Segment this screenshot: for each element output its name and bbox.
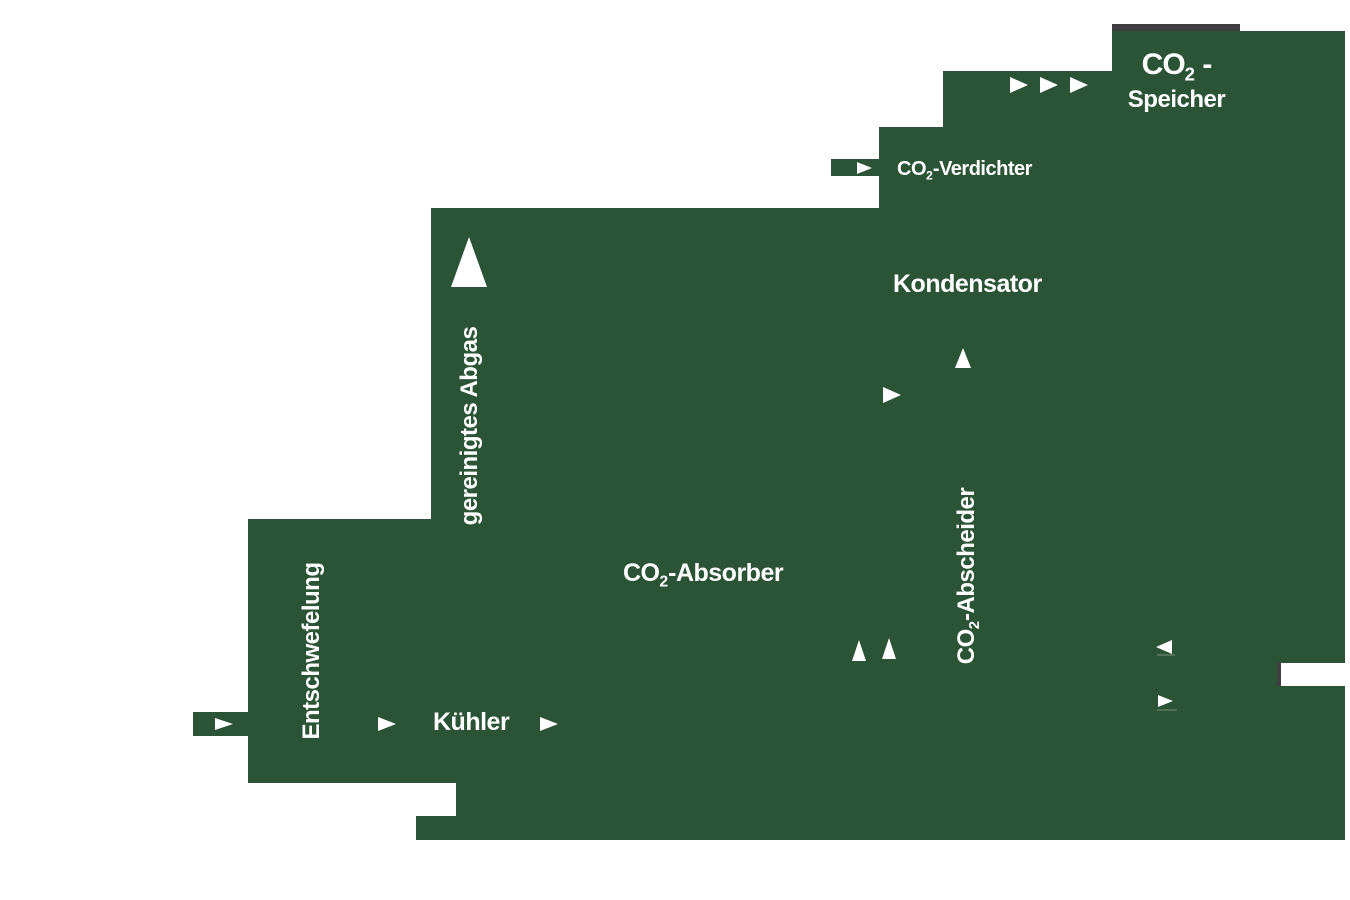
label-kondensator: Kondensator bbox=[893, 272, 1042, 297]
flow-right-arrow-2-icon bbox=[1040, 77, 1058, 93]
flow-right-arrow-3-icon bbox=[1070, 77, 1088, 93]
left-inlet-arrow-icon bbox=[215, 718, 233, 730]
right-edge-notch bbox=[1281, 663, 1345, 686]
kuehler-inlet-arrow-icon bbox=[378, 717, 396, 731]
ccs-process-diagram: CO2 - Speicher CO2-Verdichter Kondensato… bbox=[0, 0, 1350, 900]
right-side-right-arrow-icon bbox=[1158, 695, 1173, 707]
top-gray-bar bbox=[1112, 24, 1240, 31]
verdichter-inlet-arrow-icon bbox=[857, 162, 872, 174]
abgas-up-arrow-icon bbox=[451, 237, 487, 287]
notch-gray-bar bbox=[1277, 663, 1281, 686]
block-band-absorber bbox=[431, 208, 1345, 519]
flow-right-arrow-1-icon bbox=[1010, 77, 1028, 93]
right-side-left-arrow-underline bbox=[1157, 654, 1175, 656]
block-band-bottom-bar bbox=[416, 816, 1345, 840]
label-co2-abscheider: CO2-Abscheider bbox=[955, 488, 983, 664]
label-co2-verdichter: CO2-Verdichter bbox=[897, 159, 1032, 182]
kuehler-outlet-arrow-icon bbox=[540, 717, 558, 731]
block-band-bottom-step bbox=[456, 783, 1345, 816]
kondensator-up-arrow-icon bbox=[955, 348, 971, 368]
label-entschwefelung: Entschwefelung bbox=[300, 562, 324, 739]
label-co2-speicher-line1: CO2 - bbox=[1104, 50, 1249, 84]
absorber-up-arrow-1-icon bbox=[852, 640, 866, 661]
label-kuehler: Kühler bbox=[433, 710, 509, 735]
right-side-right-arrow-underline bbox=[1157, 709, 1177, 711]
kondensator-right-arrow-icon bbox=[883, 387, 901, 403]
absorber-up-arrow-2-icon bbox=[882, 638, 896, 659]
right-side-left-arrow-icon bbox=[1156, 640, 1172, 654]
label-co2-speicher-line2: Speicher bbox=[1104, 88, 1249, 112]
label-co2-speicher: CO2 - Speicher bbox=[1104, 50, 1249, 112]
label-co2-absorber: CO2-Absorber bbox=[623, 561, 783, 590]
label-gereinigtes-abgas: gereinigtes Abgas bbox=[458, 327, 482, 526]
block-band-entschwefelung bbox=[248, 519, 1345, 783]
